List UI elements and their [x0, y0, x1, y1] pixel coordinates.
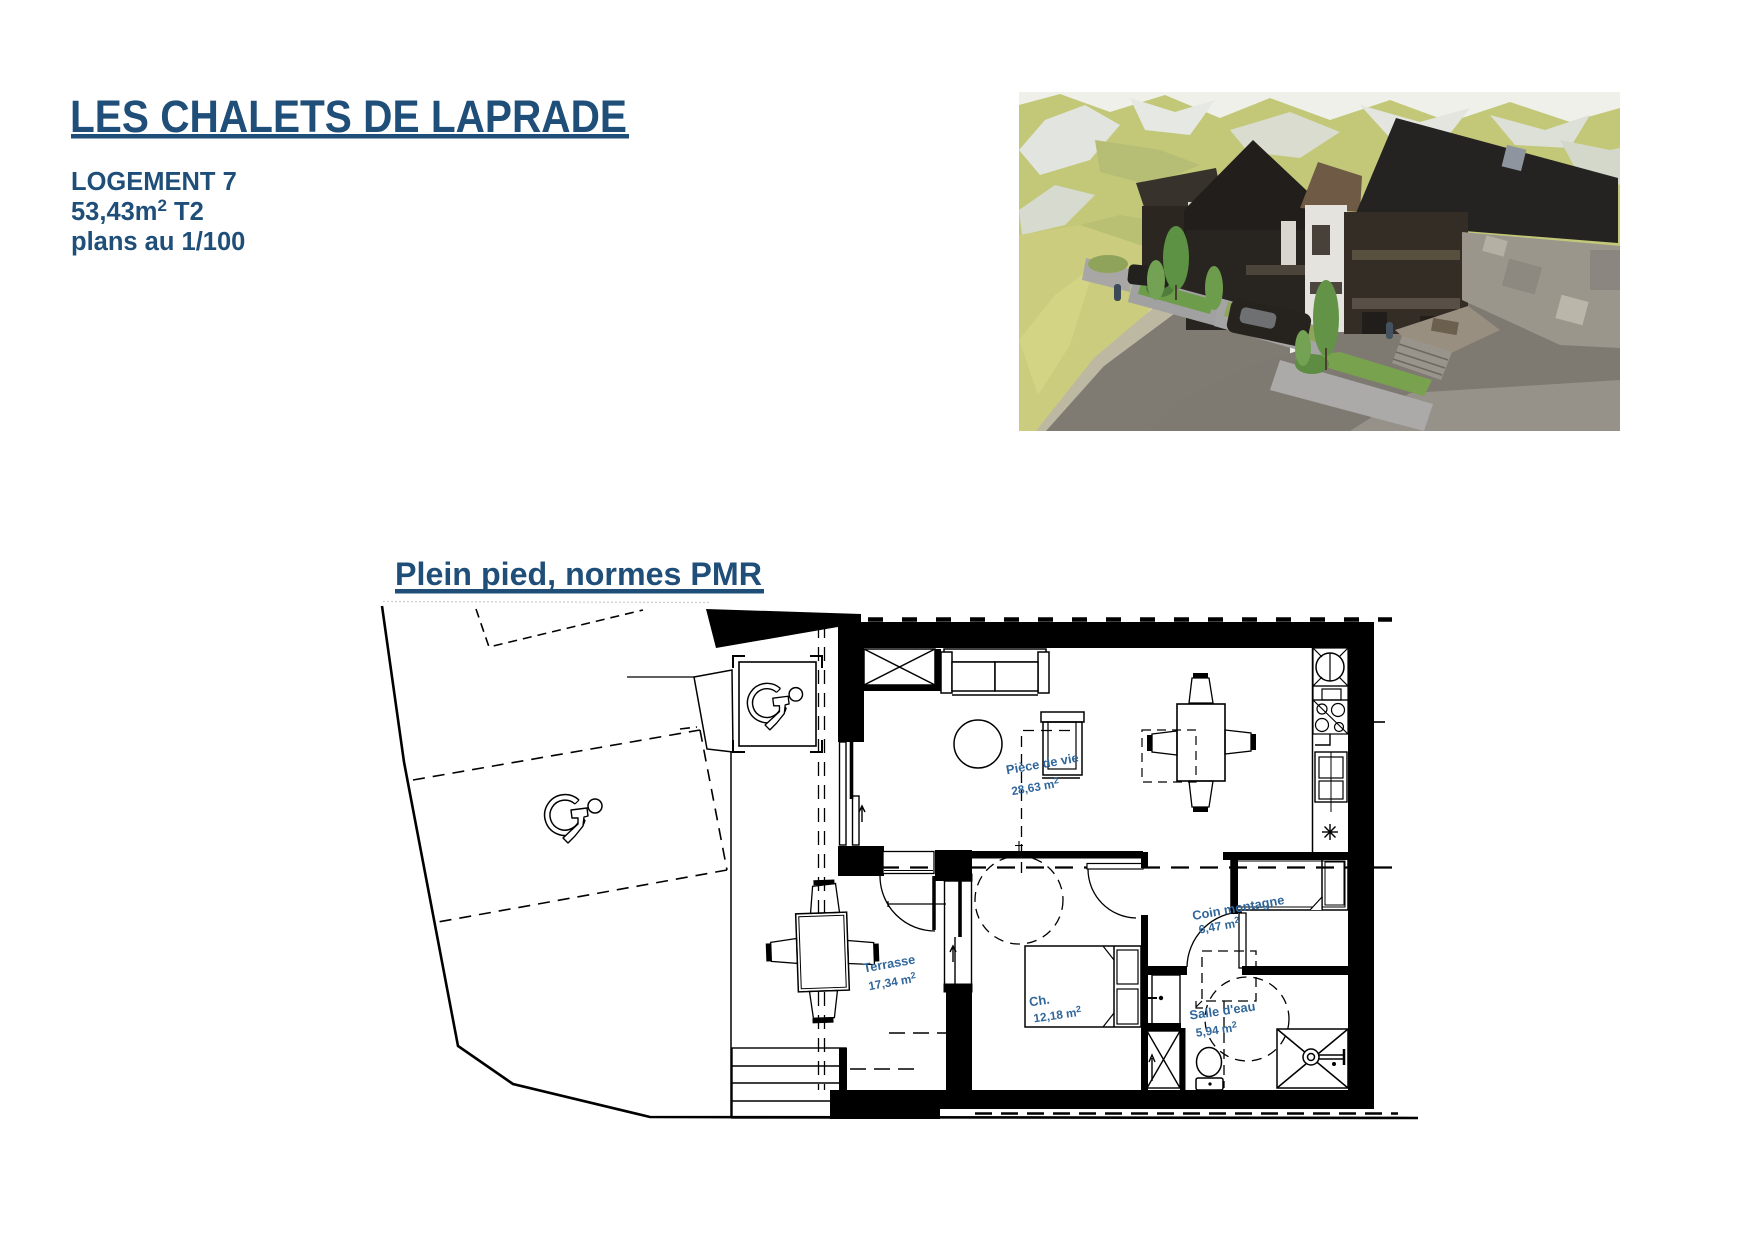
- svg-text:Ch.: Ch.: [1028, 992, 1051, 1010]
- svg-text:Plein pied, normes PMR: Plein pied, normes PMR: [395, 556, 762, 592]
- svg-text:53,43m2 T2: 53,43m2 T2: [71, 196, 204, 226]
- svg-text:LOGEMENT 7: LOGEMENT 7: [71, 168, 237, 196]
- svg-text:plans au 1/100: plans au 1/100: [71, 228, 245, 256]
